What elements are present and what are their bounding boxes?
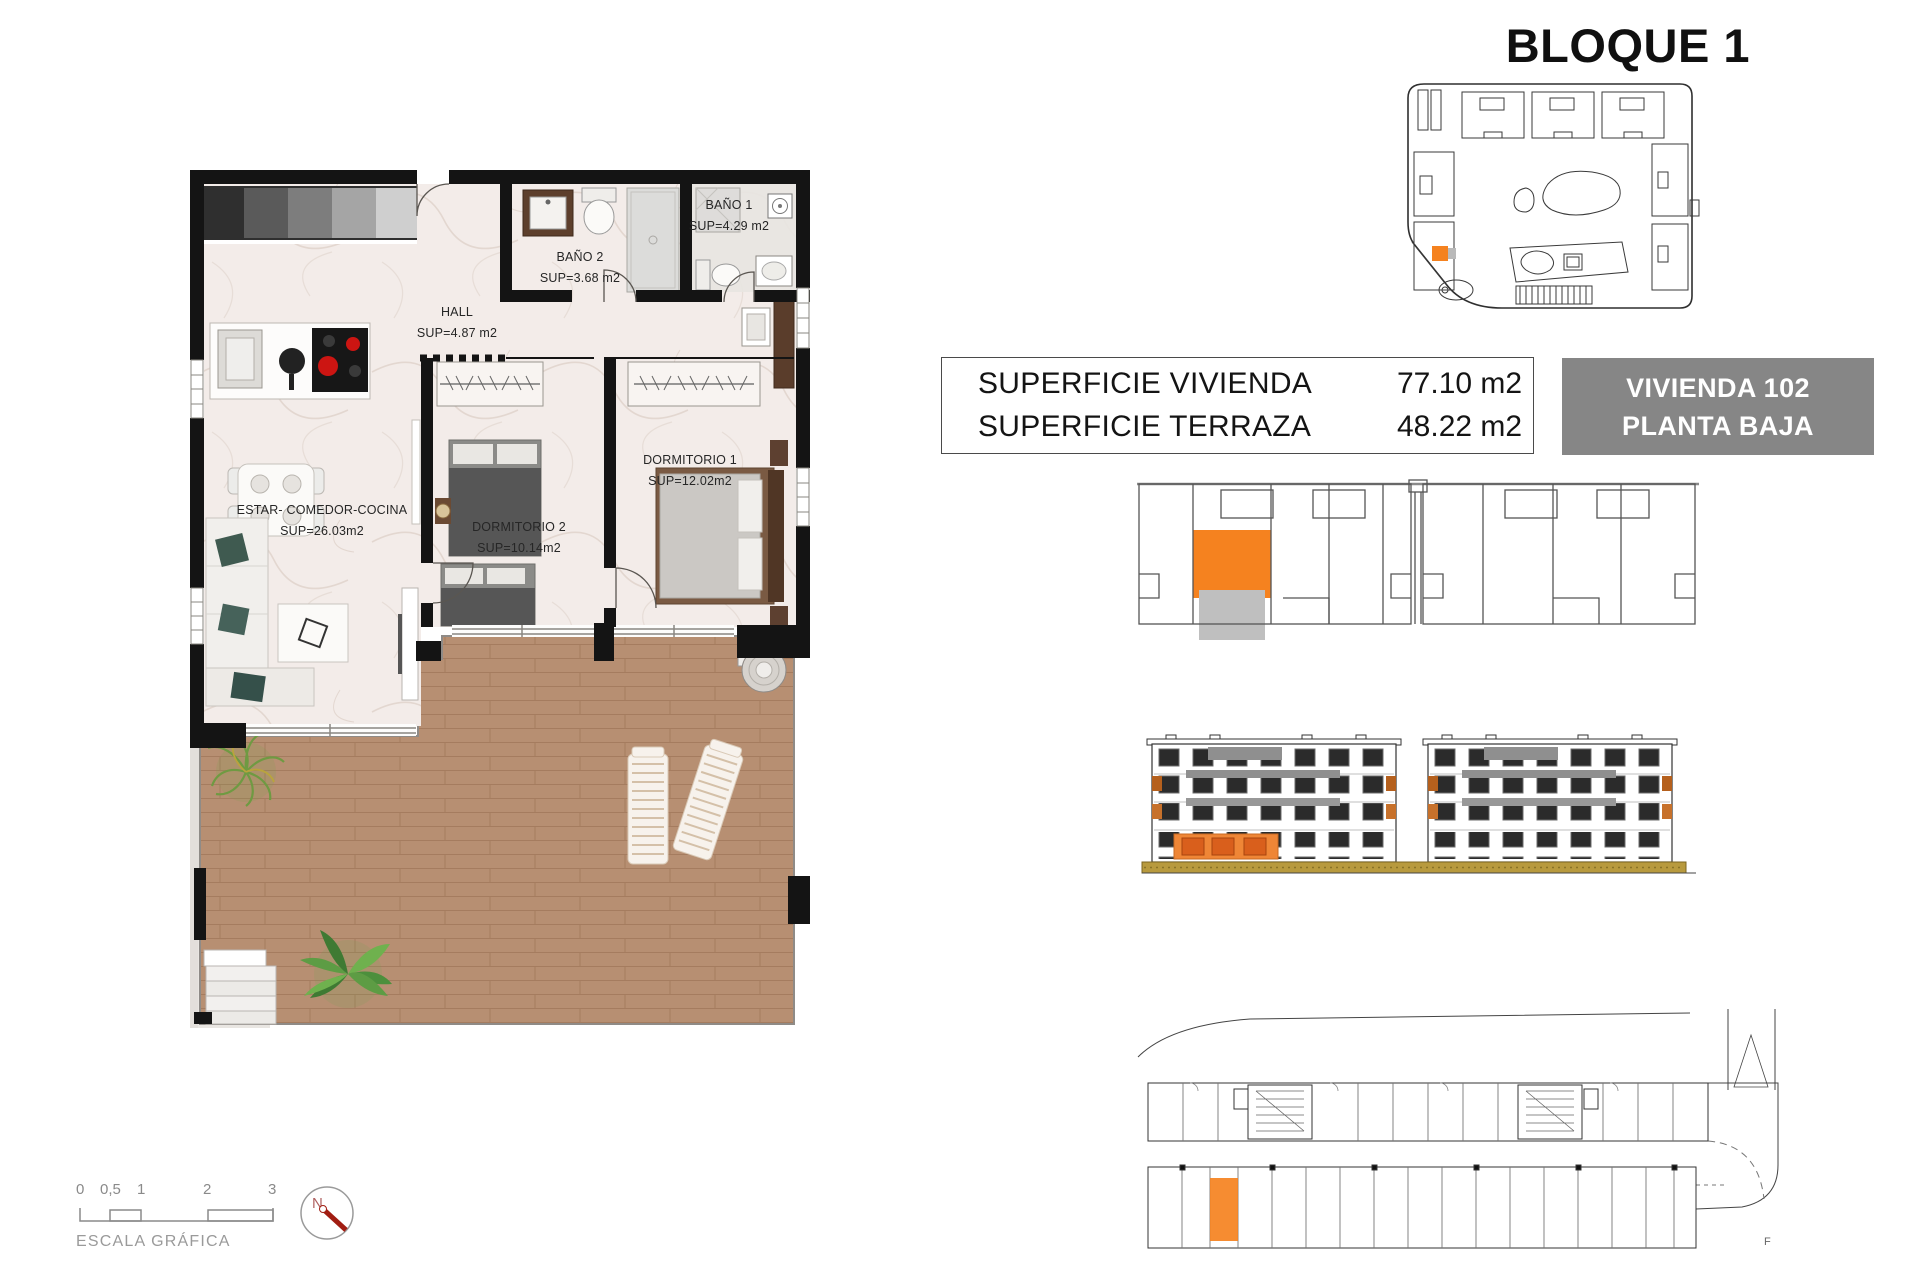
coffee-table bbox=[278, 604, 348, 662]
unit-floor: PLANTA BAJA bbox=[1622, 407, 1814, 445]
sun-lounger-1 bbox=[628, 747, 668, 864]
surface-summary-table: SUPERFICIE VIVIENDA 77.10 m2 SUPERFICIE … bbox=[941, 357, 1534, 454]
north-compass: N bbox=[298, 1184, 360, 1246]
scale-bar: 0 0,5 1 2 3 ESCALA GRÁFICA bbox=[68, 1180, 308, 1255]
bedroom2-wardrobe bbox=[437, 362, 543, 406]
entry-steps bbox=[204, 950, 276, 1024]
site-plan bbox=[1398, 76, 1718, 326]
building-elevations bbox=[1140, 728, 1700, 888]
key-highlight-unit bbox=[1193, 530, 1271, 598]
floor-key-plan bbox=[1133, 478, 1703, 648]
table-row: SUPERFICIE TERRAZA 48.22 m2 bbox=[942, 410, 1533, 444]
key-highlight-terrace bbox=[1199, 590, 1265, 640]
apartment-floor-plan bbox=[190, 168, 810, 1030]
kitchen-cabinets bbox=[204, 186, 417, 244]
parking-ref-mark: F bbox=[1764, 1236, 1771, 1248]
scale-tick: 0 bbox=[76, 1181, 84, 1198]
surface-label: SUPERFICIE TERRAZA bbox=[942, 410, 1397, 444]
elevation-building-b bbox=[1423, 735, 1677, 862]
kitchen-island bbox=[210, 323, 370, 399]
surface-value: 77.10 m2 bbox=[1397, 367, 1533, 401]
scale-tick: 2 bbox=[203, 1181, 211, 1198]
page-title: BLOQUE 1 bbox=[1490, 18, 1750, 73]
room-label-bathroom2: BAÑO 2SUP=3.68 m2 bbox=[540, 247, 620, 290]
bedroom1-wardrobe bbox=[628, 362, 760, 406]
room-label-bathroom1: BAÑO 1SUP=4.29 m2 bbox=[689, 195, 769, 238]
compass-needle bbox=[323, 1209, 346, 1230]
storage-band bbox=[1148, 1083, 1708, 1141]
parking-plan: F bbox=[1130, 995, 1790, 1260]
room-label-bedroom2: DORMITORIO 2SUP=10.14m2 bbox=[472, 517, 566, 560]
unit-badge: VIVIENDA 102 PLANTA BAJA bbox=[1562, 358, 1874, 455]
scale-tick: 1 bbox=[137, 1181, 145, 1198]
site-highlight-unit bbox=[1432, 246, 1448, 261]
scale-tick: 0,5 bbox=[100, 1181, 121, 1198]
scale-tick: 3 bbox=[268, 1181, 276, 1198]
elevation-ground bbox=[1142, 862, 1696, 873]
parking-highlight-spot bbox=[1210, 1178, 1238, 1241]
elevation-building-a bbox=[1147, 735, 1401, 862]
scale-caption: ESCALA GRÁFICA bbox=[76, 1231, 231, 1250]
room-label-bedroom1: DORMITORIO 1SUP=12.02m2 bbox=[643, 450, 737, 493]
table-row: SUPERFICIE VIVIENDA 77.10 m2 bbox=[942, 367, 1533, 401]
surface-value: 48.22 m2 bbox=[1397, 410, 1533, 444]
room-label-living: ESTAR- COMEDOR-COCINASUP=26.03m2 bbox=[237, 500, 408, 543]
unit-number: VIVIENDA 102 bbox=[1626, 369, 1810, 407]
hall-shelf bbox=[412, 420, 420, 524]
room-label-hall: HALLSUP=4.87 m2 bbox=[417, 302, 497, 345]
surface-label: SUPERFICIE VIVIENDA bbox=[942, 367, 1397, 401]
floor-plan-sheet: { "title": "BLOQUE 1", "summary_table": … bbox=[0, 0, 1920, 1280]
